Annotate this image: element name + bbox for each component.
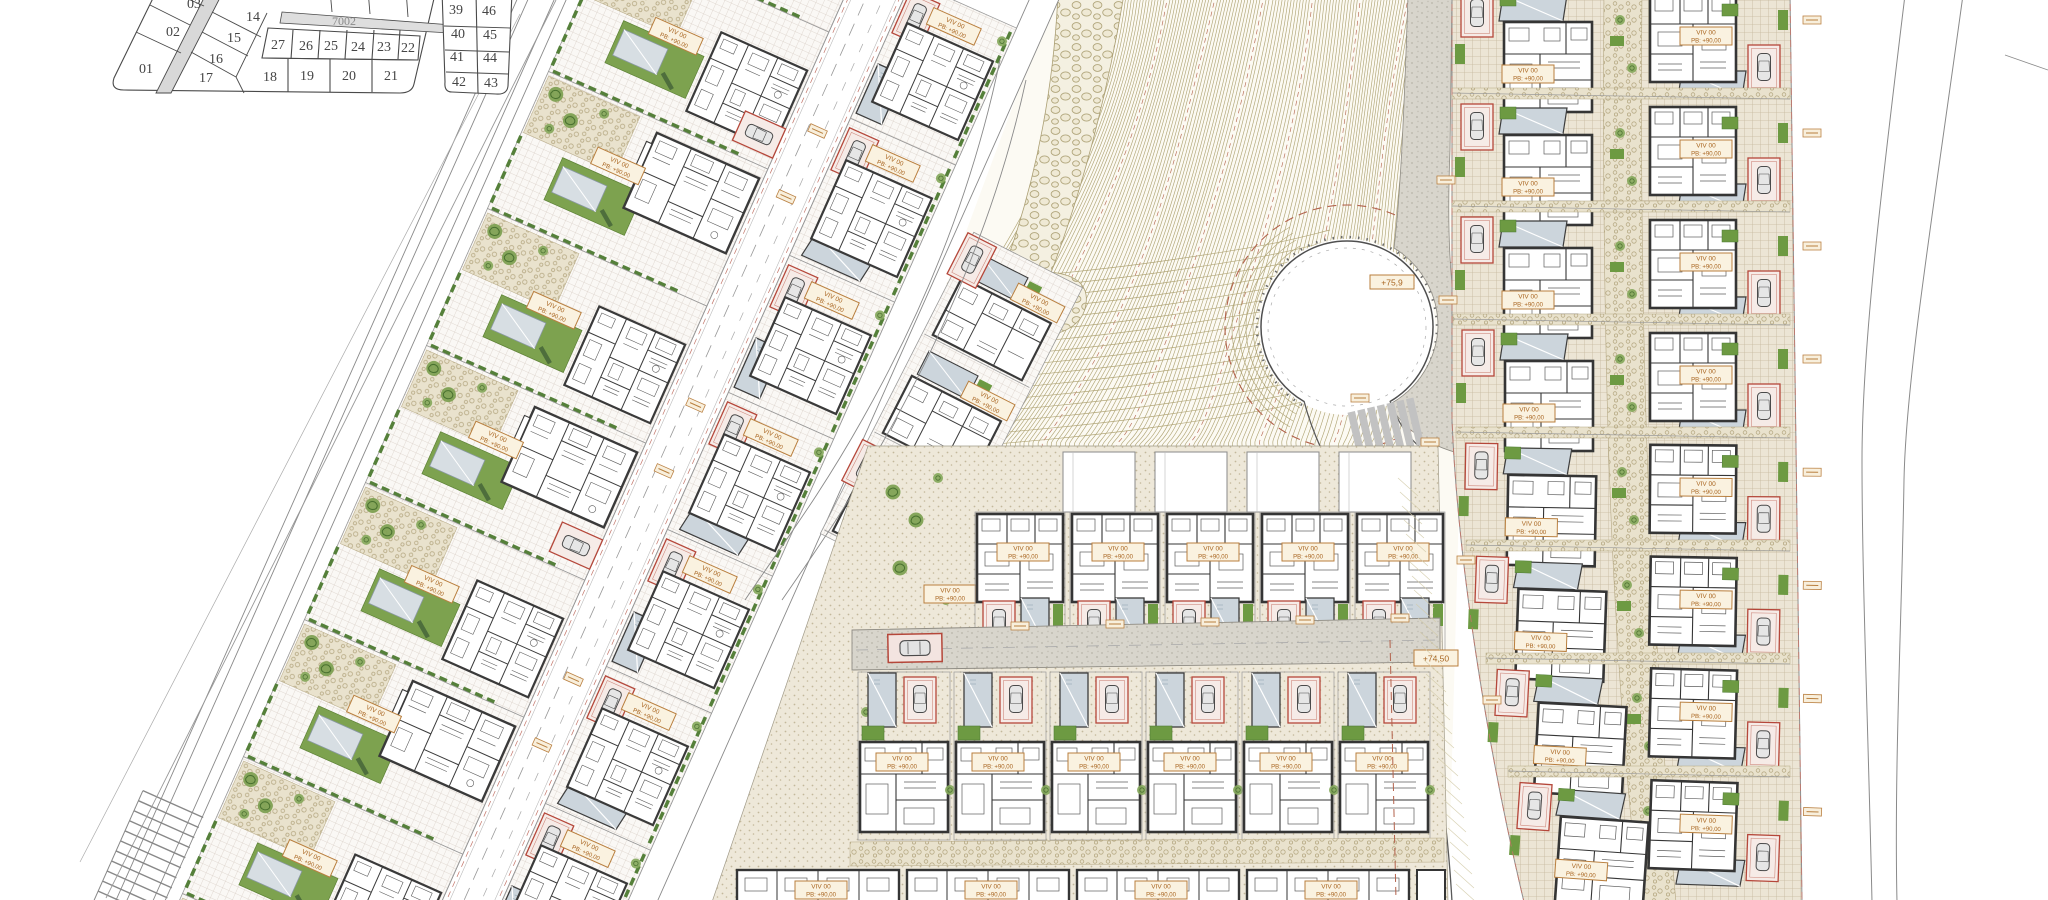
svg-text:18: 18	[263, 70, 277, 85]
svg-text:20: 20	[342, 69, 356, 84]
svg-text:14: 14	[246, 10, 260, 25]
svg-text:19: 19	[300, 69, 314, 84]
svg-text:02: 02	[166, 25, 180, 40]
svg-text:24: 24	[351, 40, 365, 55]
svg-text:23: 23	[377, 40, 391, 55]
svg-text:27: 27	[271, 38, 285, 53]
svg-text:22: 22	[401, 41, 415, 56]
svg-text:46: 46	[482, 4, 496, 19]
svg-text:25: 25	[324, 39, 338, 54]
svg-text:21: 21	[384, 69, 398, 84]
svg-text:03: 03	[187, 0, 201, 12]
svg-text:42: 42	[452, 75, 466, 90]
svg-text:+75,9: +75,9	[1381, 278, 1403, 288]
svg-text:41: 41	[450, 50, 464, 65]
svg-text:17: 17	[199, 71, 213, 86]
svg-text:45: 45	[483, 28, 497, 43]
svg-text:43: 43	[484, 76, 498, 91]
svg-text:7002: 7002	[332, 14, 356, 28]
svg-text:40: 40	[451, 27, 465, 42]
svg-text:44: 44	[483, 51, 497, 66]
svg-text:39: 39	[449, 3, 463, 18]
svg-text:26: 26	[299, 39, 313, 54]
svg-text:15: 15	[227, 31, 241, 46]
svg-text:16: 16	[209, 52, 223, 67]
svg-text:01: 01	[139, 62, 153, 77]
